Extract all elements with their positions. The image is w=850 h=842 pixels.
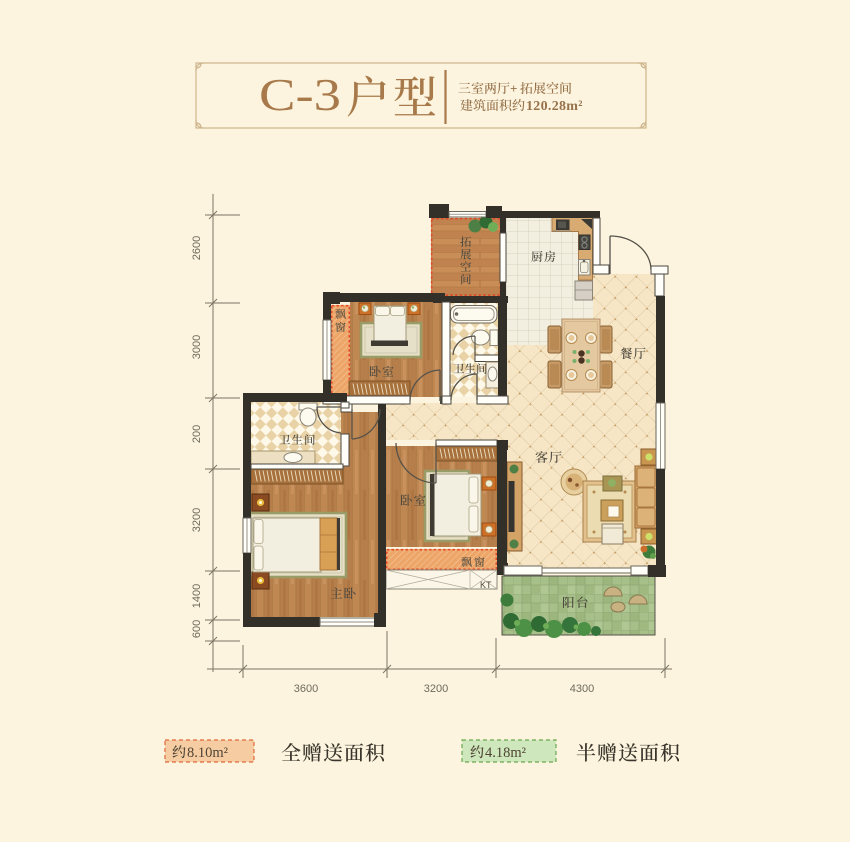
svg-text:3200: 3200 (191, 508, 203, 532)
svg-text:4.18m²: 4.18m² (485, 745, 527, 761)
svg-text:120.28m²: 120.28m² (526, 99, 583, 114)
svg-text:3000: 3000 (191, 335, 203, 359)
svg-text:4300: 4300 (570, 683, 594, 695)
svg-text:2600: 2600 (191, 236, 203, 260)
svg-text:600: 600 (191, 620, 203, 638)
svg-text:KT: KT (480, 580, 492, 590)
svg-text:C-3: C-3 (259, 70, 341, 120)
svg-text:1400: 1400 (191, 584, 203, 608)
svg-text:3600: 3600 (294, 683, 318, 695)
svg-text:3200: 3200 (424, 683, 448, 695)
svg-text:8.10m²: 8.10m² (187, 745, 229, 761)
svg-text:+: + (510, 81, 517, 96)
svg-text:200: 200 (191, 425, 203, 443)
